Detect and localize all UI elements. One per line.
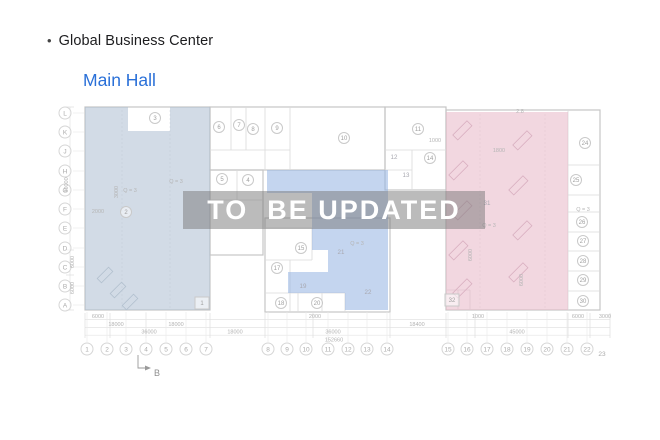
grid-row-label: H xyxy=(63,168,68,175)
dimension-text: 6000 xyxy=(92,314,104,320)
grid-col-label: 18 xyxy=(503,346,511,353)
grid-col-label: 19 xyxy=(523,346,531,353)
dimension-text: 2000 xyxy=(309,314,321,320)
grid-col-label: 9 xyxy=(285,346,289,353)
grid-col-label: 15 xyxy=(444,346,452,353)
annotation-text: 2000 xyxy=(92,209,104,215)
grid-col-label: 16 xyxy=(463,346,471,353)
grid-row-label: L xyxy=(63,110,67,117)
room-label: 17 xyxy=(274,266,281,272)
annotation-text: 1000 xyxy=(429,138,441,144)
room-label: 28 xyxy=(580,259,587,265)
dimension-text: 18000 xyxy=(227,330,242,336)
grid-col-label: 6 xyxy=(184,346,188,353)
dimension-text: 36000 xyxy=(325,330,340,336)
annotation-text-vertical: 6000 xyxy=(519,274,525,286)
annotation-text: 2.8 xyxy=(516,109,524,115)
room-label: 15 xyxy=(298,246,305,252)
room-label: 10 xyxy=(341,136,348,142)
annotation-text-vertical: 6000 xyxy=(70,282,76,294)
room-label: 13 xyxy=(403,172,410,179)
annotation-text: Q = 3 xyxy=(350,241,364,247)
grid-col-label: 21 xyxy=(563,346,571,353)
grid-col-label: 23 xyxy=(598,351,606,358)
dimension-text: 6000 xyxy=(572,314,584,320)
room-label: 12 xyxy=(391,154,398,161)
room-label: 29 xyxy=(580,278,587,284)
annotation-text-vertical: 6000 xyxy=(70,256,76,268)
floor-plan: LKJHGFEDCBA12345678910111213141516171819… xyxy=(0,0,660,440)
watermark: TO BE UPDATED xyxy=(183,191,485,229)
grid-row-label: F xyxy=(63,206,67,213)
annotation-text-vertical: 6000 xyxy=(468,249,474,261)
grid-col-label: 13 xyxy=(363,346,371,353)
room-label: 26 xyxy=(579,220,586,226)
room-label: 11 xyxy=(415,127,422,133)
room-label: 32 xyxy=(449,298,456,304)
grid-row-label: E xyxy=(63,225,68,232)
grid-col-label: 11 xyxy=(325,346,332,353)
grid-col-label: 3 xyxy=(124,346,128,353)
grid-row-label: J xyxy=(63,148,66,155)
grid-row-label: C xyxy=(63,264,68,271)
section-marker-label: B xyxy=(154,368,160,378)
section-marker: B xyxy=(138,355,160,378)
dimension-text: 18000 xyxy=(168,322,183,328)
grid-row-label: K xyxy=(63,129,68,136)
grid-col-label: 12 xyxy=(344,346,352,353)
room-label: 24 xyxy=(582,141,589,147)
grid-row-label: B xyxy=(63,283,67,290)
annotation-text: 1800 xyxy=(493,148,505,154)
grid-col-label: 10 xyxy=(302,346,310,353)
room-label: 18 xyxy=(278,301,285,307)
grid-row-label: A xyxy=(63,302,68,309)
annotation-text-vertical: 60000 xyxy=(64,177,70,192)
grid-col-label: 7 xyxy=(204,346,208,353)
dimension-text: 45000 xyxy=(509,330,524,336)
room-label: 14 xyxy=(427,156,434,162)
annotation-text: Q = 3 xyxy=(169,179,183,185)
annotation-text: Q = 3 xyxy=(576,207,590,213)
annotation-text: Q = 3 xyxy=(123,188,137,194)
grid-col-label: 17 xyxy=(483,346,491,353)
dimension-text: 18000 xyxy=(108,322,123,328)
room-label: 20 xyxy=(314,301,321,307)
dimension-text: 1000 xyxy=(472,314,484,320)
room-label: 22 xyxy=(365,289,372,296)
grid-col-label: 1 xyxy=(85,346,89,353)
grid-col-label: 2 xyxy=(105,346,109,353)
room-label: 19 xyxy=(300,283,307,290)
room-label: 21 xyxy=(338,249,345,256)
annotation-text-vertical: 3000 xyxy=(114,186,120,198)
grid-col-label: 5 xyxy=(164,346,168,353)
room-label: 27 xyxy=(580,239,587,245)
grid-col-label: 8 xyxy=(266,346,270,353)
room-label: 25 xyxy=(573,178,580,184)
grid-col-label: 14 xyxy=(383,346,391,353)
grid-col-label: 22 xyxy=(583,346,591,353)
dimension-text: 36000 xyxy=(141,330,156,336)
room-label: 30 xyxy=(580,299,587,305)
watermark-text: TO BE UPDATED xyxy=(207,195,461,225)
dimension-text: 18400 xyxy=(409,322,424,328)
grid-col-label: 20 xyxy=(543,346,551,353)
grid-col-label: 4 xyxy=(144,346,148,353)
grid-row-label: D xyxy=(63,245,68,252)
dimension-text: 3000 xyxy=(599,314,611,320)
dimension-text: 152660 xyxy=(325,338,343,344)
